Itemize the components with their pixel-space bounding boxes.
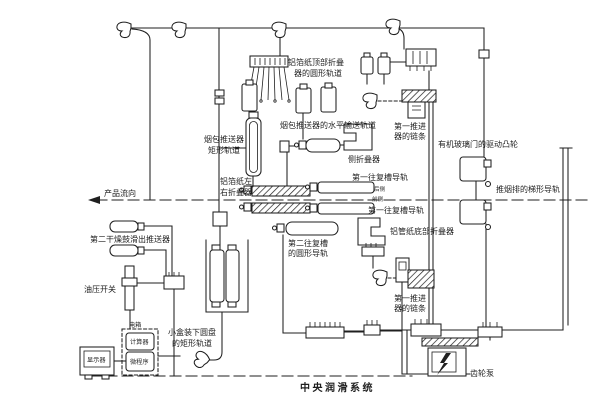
pipe-network	[90, 28, 588, 376]
grease-nozzle-icon	[272, 22, 286, 37]
label-pusher1-chain-lower: 器的链条	[394, 303, 426, 313]
lubricator-canisters	[242, 80, 336, 113]
grease-nozzle-icon	[386, 19, 400, 34]
recip-groove2-circular-rail-symbol	[273, 222, 339, 235]
label-foil-left-right-folder: 铝箔纸左	[220, 176, 252, 186]
label-foil-top-circular-track: 铝箔纸顶部折叠	[288, 57, 344, 67]
label-dryer2-slideout-pusher: 第二干燥鼓滑出推送器	[90, 234, 170, 244]
label-computer-unit: 计算器	[130, 338, 149, 346]
pusher1-chain-upper-symbol	[402, 90, 436, 118]
label-gear-pump: 齿轮泵	[470, 368, 494, 378]
central-lubrication-diagram: 铝箔纸顶部折叠 器的圆形轨道 烟包推送器的水平输送轨道 烟包推送器 矩形轨道 侧…	[0, 0, 600, 405]
label-pusher1-chain-upper: 第一推进	[394, 121, 426, 131]
label-pusher1-chain-lower: 第一推进	[394, 293, 426, 303]
label-tube-paper-bottom-folder: 铝管纸底部折叠器	[390, 226, 454, 236]
scanned-diagram-page: 铝箔纸顶部折叠 器的圆形轨道 烟包推送器的水平输送轨道 烟包推送器 矩形轨道 侧…	[0, 0, 600, 405]
grease-nozzle-icon	[172, 22, 186, 37]
small-box-disc-track-symbol	[206, 212, 248, 312]
label-pack-pusher-rect-track: 矩形轨道	[208, 145, 240, 155]
flow-direction-arrow-icon	[88, 196, 100, 204]
horizontal-transport-track-symbol	[280, 139, 340, 152]
label-recip-groove2-circular-rail: 第二往复槽	[288, 238, 328, 248]
oil-pressure-switch-symbol	[122, 266, 137, 310]
label-oil-pressure-switch: 油压开关	[84, 284, 116, 294]
pack-pusher-rect-track-symbol	[246, 112, 261, 176]
label-small-box-disc-rect-track: 的矩形轨道	[172, 338, 212, 348]
recip-groove-rails-symbol	[306, 182, 375, 214]
grease-nozzle-icon	[373, 270, 387, 285]
electric-box-symbol	[122, 329, 158, 375]
label-recip-rear-side: 后侧	[374, 185, 386, 193]
grease-nozzle-icon	[190, 349, 211, 370]
label-foil-left-right-folder: 右折叠器	[220, 187, 252, 197]
diagram-caption: 中央润滑系统	[300, 381, 375, 394]
top-right-distributor-symbol	[361, 49, 489, 74]
label-recip-front-side: 前侧	[372, 195, 384, 203]
junction-manifold-symbol	[164, 272, 184, 289]
bottom-distributor-blocks	[306, 319, 502, 338]
grease-nozzle-icon	[363, 93, 377, 108]
label-small-box-disc-rect-track: 小盒装下圆盘	[168, 327, 216, 337]
label-pack-pusher-horizontal-track: 烟包推送器的水平输送轨道	[280, 120, 376, 130]
label-side-folder: 侧折叠器	[348, 154, 380, 164]
label-pack-pusher-rect-track: 烟包推送器	[204, 134, 244, 144]
label-product-flow: 产品流向	[104, 188, 136, 198]
label-foil-top-circular-track: 器的圆形轨道	[294, 68, 342, 78]
label-recip-groove2-circular-rail: 的圆形导轨	[288, 248, 328, 258]
label-microprogram-unit: 微程序	[130, 358, 149, 366]
label-display-unit: 显示器	[87, 357, 106, 364]
label-push-row-trapezoid-rail: 推烟排的梯形导轨	[496, 184, 560, 194]
label-pusher1-chain-upper: 器的链条	[394, 131, 426, 141]
label-electric-box: 电箱	[129, 321, 141, 329]
grease-nozzle-icon	[117, 22, 131, 37]
label-recip-groove-rail-front: 第一往复槽导轨	[368, 205, 424, 215]
label-plexiglass-door-cam: 有机玻璃门的驱动凸轮	[438, 139, 518, 149]
label-recip-groove-rail-rear: 第一往复槽导轨	[352, 172, 408, 182]
tube-paper-bottom-folder-symbol	[358, 218, 385, 256]
